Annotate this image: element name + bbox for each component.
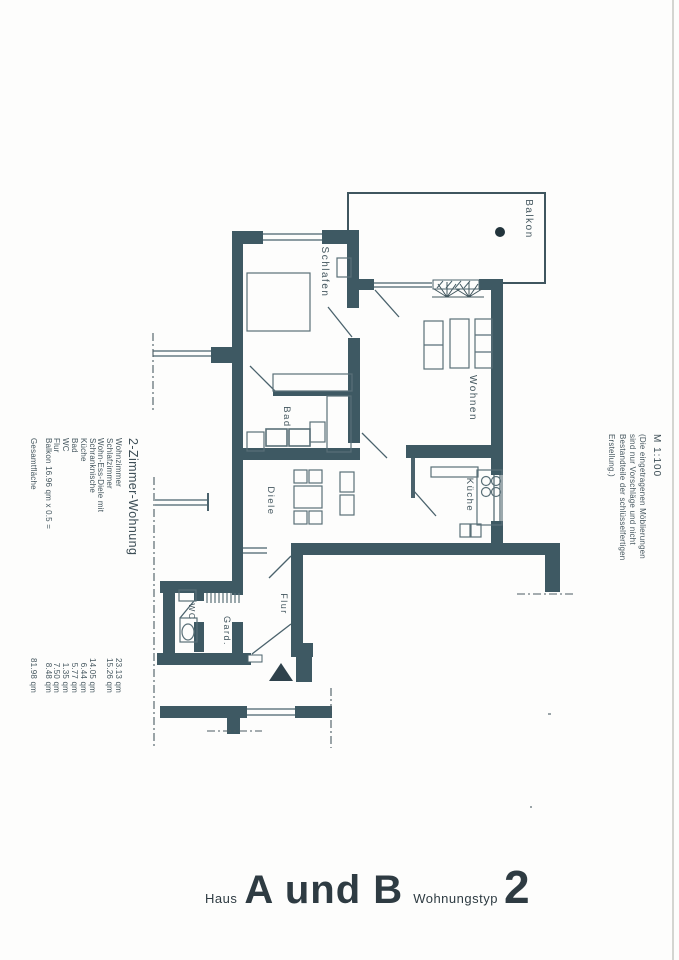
room-label-wohnen: Wohnen [467,375,478,421]
footer-title: Haus A und B Wohnungstyp 2 [205,860,530,914]
furnishing-note-line: Erstellung.) [606,434,616,606]
entrance-arrow-icon [269,663,293,681]
room-label-garderobe: Gard. [222,616,232,646]
balcony-outline [348,193,545,283]
table-row: Balkon 16.96 qm x 0.5 =8.48 qm [43,438,52,700]
balcony-drain-dot [495,227,505,237]
scan-edge-artifact [672,0,674,960]
area-table-rotated-block: 2-Zimmer-Wohnung Wohnzimmer23.13 qm Schl… [15,438,140,700]
room-label-bad: Bad [281,406,292,427]
boundary-lines-layer [153,333,573,748]
apartment-type-title: 2-Zimmer-Wohnung [126,438,140,700]
scan-specks [530,713,551,808]
scanned-floorplan-page: Balkon Schlafen Wohnen Bad Diele Küche F… [0,0,679,960]
haus-value: A und B [244,868,403,913]
table-row: WC1.35 qm [60,438,69,700]
table-row: Bad5.77 qm [69,438,78,700]
furnishing-note-line: sind nur Vorschläge und nicht [627,434,637,606]
table-row: Küche6.44 qm [78,438,87,700]
table-row: Schranknische14.05 qm [87,438,96,700]
room-label-balkon: Balkon [523,199,534,239]
room-label-flur: Flur [279,593,289,615]
furnishing-note-line: (Die eingetragenen Möblierungen [637,434,647,606]
furnishing-note-line: Bestandteile der schlüsselfertigen [616,434,626,606]
room-label-schlafen: Schlafen [319,247,330,298]
windows-layer [153,231,503,718]
table-row: Wohn-Ess-Diele mit [96,438,105,700]
table-row: Wohnzimmer23.13 qm [113,438,122,700]
wohnungstyp-value: 2 [504,860,530,914]
haus-label: Haus [205,891,237,906]
area-table: Wohnzimmer23.13 qm Schlafzimmer15.26 qm … [28,438,122,700]
table-row: Flur7.50 qm [52,438,61,700]
scale-label: M 1:100 [651,434,662,606]
table-row: Schlafzimmer15.26 qm [104,438,113,700]
scale-note-rotated-block: M 1:100 (Die eingetragenen Möblierungen … [598,434,662,606]
table-row-total: Gesamtfläche81.98 qm [28,438,37,700]
room-label-kueche: Küche [464,478,475,512]
room-label-wc: WC [187,603,197,620]
wohnungstyp-label: Wohnungstyp [413,891,498,906]
room-label-diele: Diele [265,486,276,515]
